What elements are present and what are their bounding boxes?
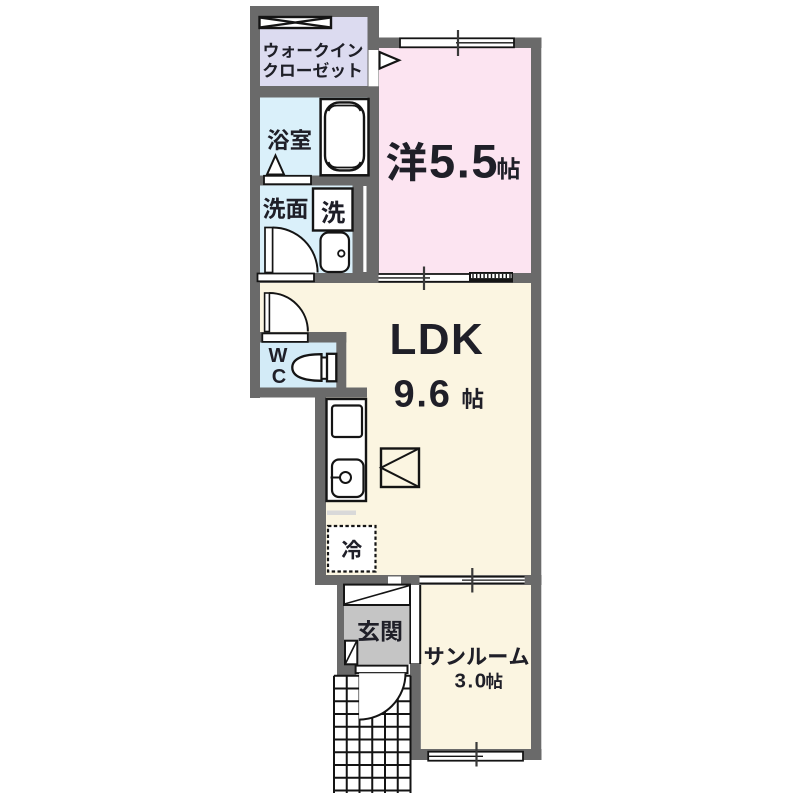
svg-text:W: W: [269, 345, 288, 367]
svg-text:9.6: 9.6: [394, 374, 452, 416]
svg-text:5.5: 5.5: [429, 135, 499, 188]
svg-text:C: C: [272, 366, 286, 388]
svg-text:3.0: 3.0: [455, 670, 488, 693]
svg-text:LDK: LDK: [390, 315, 485, 364]
